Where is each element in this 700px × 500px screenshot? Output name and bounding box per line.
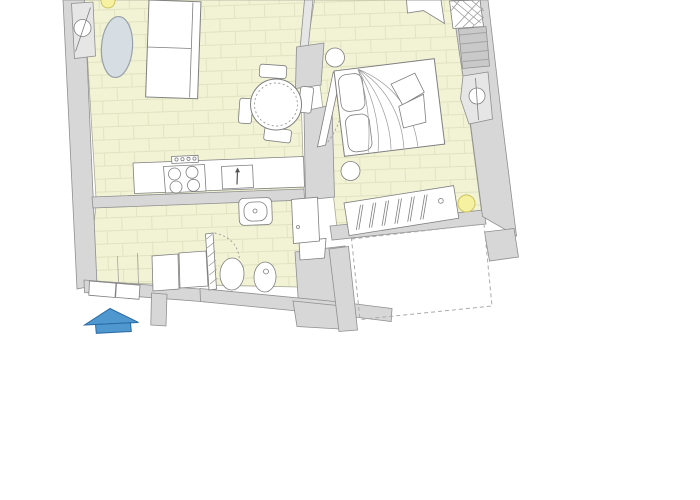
- ceiling-light-bedroom: [458, 195, 475, 212]
- dining-table: [251, 79, 302, 130]
- entry-arrow: [85, 309, 139, 334]
- dashed-void-area: [352, 224, 493, 320]
- entry-door-gap-2: [116, 283, 140, 299]
- entry-door-gap-1: [89, 281, 116, 298]
- left-window: [72, 2, 96, 59]
- kitchen-counter: [133, 157, 305, 194]
- right-wall-stub: [485, 229, 519, 262]
- shower-unit: [152, 254, 179, 291]
- kitchen-sink: [222, 165, 254, 189]
- entry-wall-stub: [151, 293, 167, 326]
- burner: [186, 166, 198, 178]
- entry-arrow-bar: [96, 323, 132, 334]
- bedside-stool: [341, 162, 360, 181]
- washer-unit: [179, 251, 208, 288]
- partition-block-a: [296, 43, 325, 89]
- pillow: [338, 73, 366, 113]
- faucet: [237, 171, 238, 185]
- floor-plan: [0, 0, 700, 500]
- bedroom-door: [292, 197, 320, 243]
- washbasin: [239, 197, 273, 225]
- vent-shaft: [450, 0, 485, 29]
- burner: [170, 181, 182, 193]
- dining-chair-top: [259, 64, 287, 79]
- bedside-stool: [326, 48, 345, 67]
- stove: [164, 165, 207, 194]
- sofa: [146, 0, 201, 99]
- burner: [169, 168, 181, 180]
- striped-window: [459, 27, 490, 69]
- double-bed: [334, 59, 445, 157]
- floor-plan-canvas: [0, 0, 700, 500]
- control-strip: [172, 155, 199, 163]
- burner: [188, 179, 200, 191]
